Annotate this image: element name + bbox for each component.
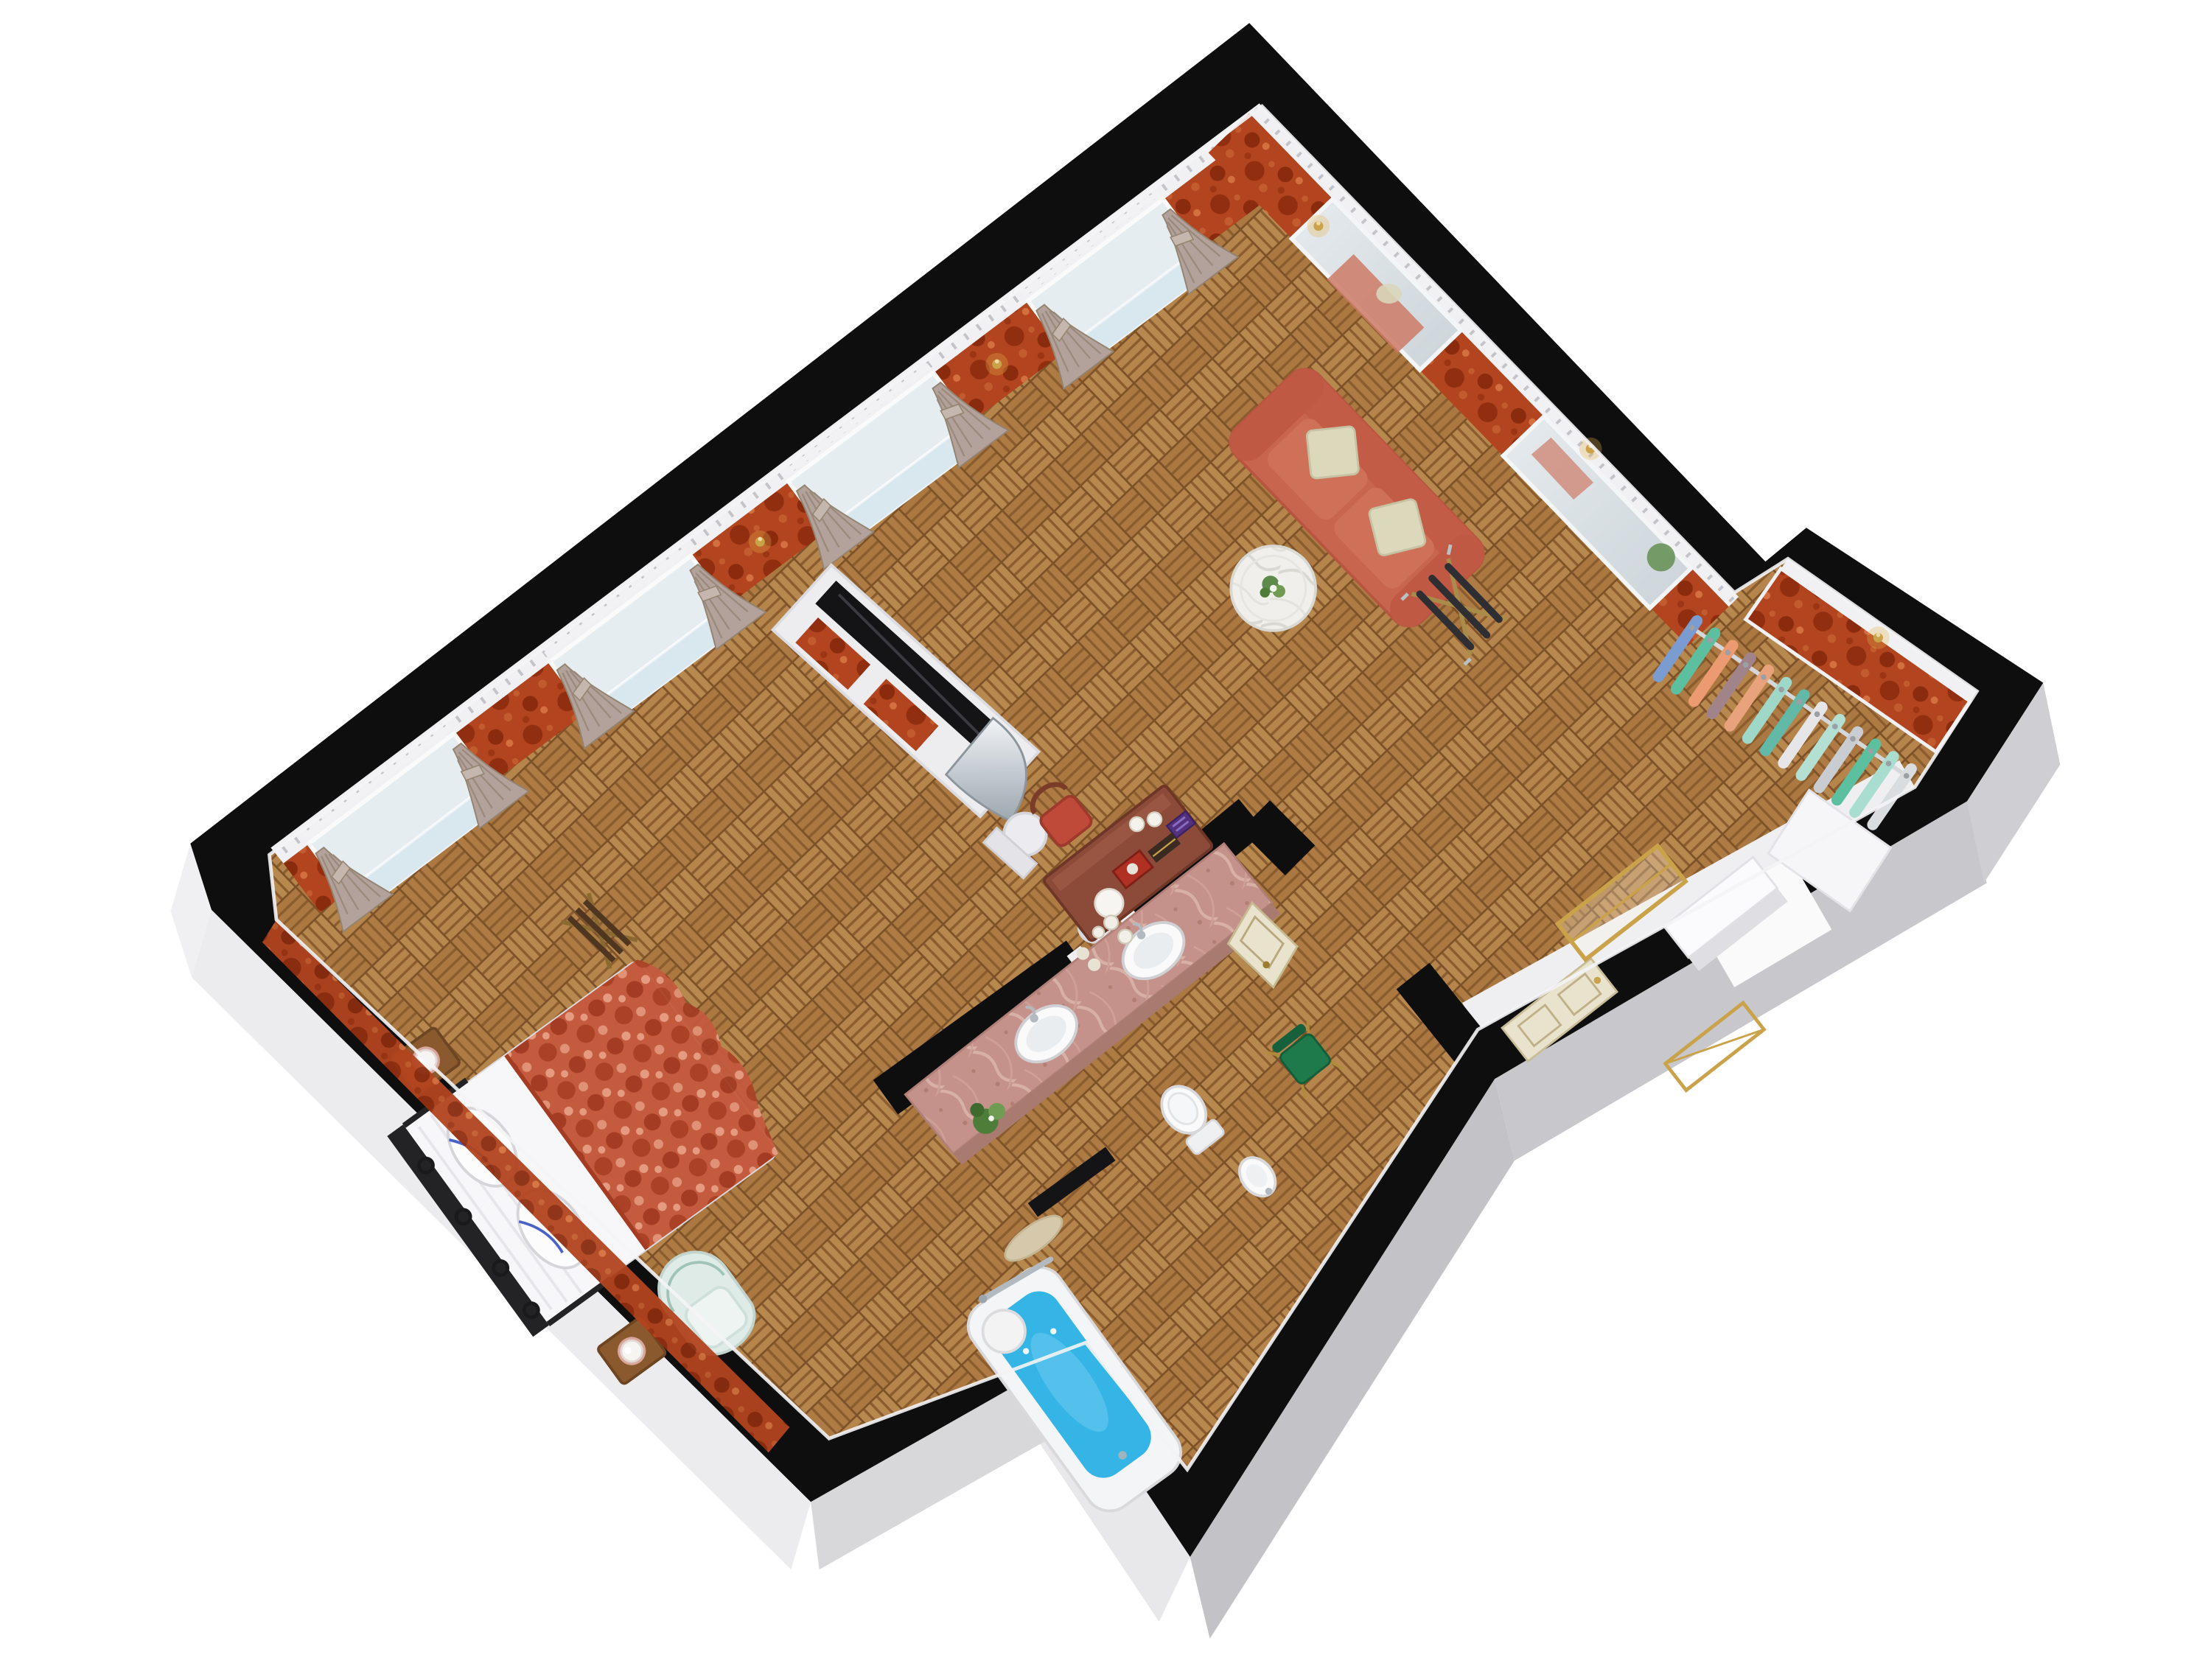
hanging-garment (1712, 658, 1750, 714)
frieze-molding (276, 112, 1265, 856)
purple-box (1167, 811, 1195, 839)
faucet (1136, 929, 1148, 941)
hall-door (1502, 959, 1617, 1061)
floor-parquet (269, 106, 1977, 1469)
bedroom-armchair (644, 1238, 766, 1368)
hanger-hook (1725, 650, 1731, 656)
bath-nw-wall-a (1128, 816, 1252, 917)
armchair-cushion (682, 1283, 751, 1351)
toilet-bowl (1153, 1077, 1215, 1141)
nightstand-right (597, 1317, 667, 1385)
bed-base (403, 959, 778, 1323)
floor (269, 106, 1977, 1469)
closet-wallpaper (1746, 569, 1970, 752)
chair-gold-legs (1268, 1021, 1344, 1099)
bed-sheet-fold (403, 1055, 646, 1323)
bathroom-door (1228, 903, 1297, 987)
door-panel (1241, 917, 1283, 967)
page-background (0, 1, 2211, 1680)
wallpaper-band (284, 119, 1309, 912)
gold-frame (1666, 1003, 1764, 1091)
bidet-faucet (1264, 1186, 1274, 1196)
column-top (995, 805, 1055, 864)
sofa-pillow (1307, 426, 1359, 478)
sink-left (1106, 903, 1195, 990)
toilet (1153, 1077, 1226, 1156)
vanity-counter-edge (953, 903, 1280, 1165)
curtain-drape (537, 648, 634, 748)
flower-vase (1260, 575, 1285, 598)
bath-nw-wall-b (886, 958, 1079, 1097)
wallpaper-band (1209, 113, 1729, 646)
hanger-hook (1868, 749, 1873, 755)
tub-side-stool (983, 1310, 1025, 1352)
shower-bar-post (979, 1295, 987, 1303)
green-chair (1266, 1019, 1344, 1099)
valance-rod (545, 549, 686, 654)
valet-rack (561, 893, 637, 968)
cornice-band (270, 103, 1271, 863)
curtain-drape (777, 469, 874, 570)
chrome-sail (943, 718, 1054, 827)
valance-rod (304, 727, 450, 836)
window-1 (1024, 192, 1215, 370)
hanging-garment (1837, 744, 1876, 800)
living-room (1025, 361, 1517, 942)
closet-wall (1746, 559, 1977, 752)
iron-headboard (387, 1124, 549, 1337)
closet-rail (1692, 628, 1907, 776)
partition-wallpaper-inset (864, 679, 939, 751)
bath-ne-wall-b (1413, 976, 1492, 1075)
door-panel (1559, 974, 1601, 1015)
toilet-tank (1185, 1119, 1226, 1155)
door-jamb (1067, 946, 1091, 970)
hanging-garment (1677, 633, 1715, 689)
bidet (1232, 1151, 1283, 1204)
door-side-face (1688, 888, 1788, 970)
sofa-back (1279, 361, 1491, 579)
counter-plant (970, 1103, 1005, 1134)
radiator-cover (825, 422, 985, 550)
gold-sconce-icon (1867, 626, 1890, 649)
wall-slab (190, 23, 2043, 1557)
tub-jet (1021, 1347, 1030, 1356)
pillow-reflection (1376, 284, 1401, 304)
curtain-drape (668, 549, 766, 649)
bathtub (958, 1257, 1191, 1521)
column (1079, 911, 1110, 942)
sofa-arm-left (1222, 361, 1330, 468)
toiletries (1077, 915, 1133, 971)
sofa-pillow (1368, 498, 1426, 556)
tv-partition (761, 565, 1093, 878)
mirror-panel-2 (1503, 416, 1691, 608)
window-2 (784, 365, 986, 550)
hanger-hook (1886, 760, 1892, 766)
writing-desk (1043, 785, 1214, 942)
hanger-hook (1707, 637, 1713, 643)
plant-reflection (1647, 543, 1675, 571)
sofa-reflection-2 (1531, 438, 1593, 500)
gold-console (1558, 846, 1686, 959)
sofa-seat-left (1262, 414, 1372, 524)
table-lamp-shade (617, 1337, 646, 1366)
inner-edge-highlight (269, 106, 1977, 1469)
sconce-layer (749, 214, 1890, 648)
partition-wallpaper-inset (795, 617, 870, 690)
pillow-piping (449, 1124, 562, 1267)
white-panel (1768, 790, 1890, 911)
ornate-red-box (1113, 850, 1153, 888)
hall-outer-face (1495, 801, 1987, 1161)
notch-outer-face (811, 1361, 1067, 1569)
chair-back (1271, 1022, 1307, 1054)
radiator-cover (587, 605, 743, 730)
faucet-spout (1133, 921, 1145, 935)
hanger-hook (1904, 773, 1910, 779)
bedroom-wallpaper-strip (262, 920, 790, 1452)
coverlet-fold (506, 1055, 647, 1249)
chair-backrest (1026, 777, 1066, 813)
tub-jet (1049, 1327, 1058, 1336)
wall-outer-faces (171, 683, 2061, 1639)
curtains (296, 194, 1238, 931)
partition-body (773, 565, 1039, 817)
hanger-hook (1850, 736, 1856, 742)
walk-in-closet (1658, 621, 1911, 825)
tub-water (982, 1282, 1160, 1486)
hanger-hook (1743, 662, 1749, 668)
sofa (1222, 361, 1491, 634)
cabinet-tv-slab (815, 581, 1017, 767)
door-knob (1262, 962, 1270, 969)
bath-ne-wall-a (1255, 816, 1300, 861)
window-wall (270, 103, 1308, 931)
desk-lamp (1089, 883, 1129, 923)
faucet-spout (1025, 1004, 1037, 1018)
desk-top (1043, 785, 1214, 942)
mirror-wall (1209, 103, 1739, 646)
curtain-drape (1141, 194, 1238, 294)
armchair-back (644, 1238, 766, 1368)
window-4-bedroom (304, 727, 506, 913)
hanging-garment (1784, 707, 1822, 763)
bathroom-se-outer-face (1190, 1079, 1515, 1639)
hanging-garment (1819, 732, 1857, 788)
bathroom (905, 844, 1344, 1521)
iron-siderail (404, 1080, 611, 1324)
radiator-cover (1065, 248, 1216, 370)
floorplan-svg (0, 0, 2211, 1680)
table-lamp-shade (411, 1046, 441, 1075)
tub-drain (1117, 1449, 1128, 1461)
bedroom (262, 920, 1116, 1452)
valance-rod (784, 365, 929, 474)
hanger-hook (1814, 711, 1820, 717)
coffee-cup (1145, 809, 1164, 829)
fabric-drape (999, 1208, 1069, 1269)
table-lamp-base (612, 1331, 651, 1371)
gold-sconce-icon (749, 531, 772, 553)
gold-sconce-icon (1579, 438, 1602, 461)
sofa-seat-right (1330, 483, 1439, 593)
bed-pillow (503, 1177, 601, 1281)
entry-hall (1502, 790, 1891, 1091)
frieze-molding (1255, 109, 1735, 603)
lamp-highlight (417, 1055, 427, 1065)
window-glass (789, 373, 971, 531)
window-glass (309, 734, 491, 893)
bed-pillow (434, 1095, 531, 1199)
curtain-drape (296, 831, 393, 931)
headboard-scrolls (416, 1155, 542, 1320)
curtain-drape (432, 728, 529, 828)
sheet-texture (416, 1104, 581, 1313)
coffee-table (1231, 546, 1316, 631)
hanger-hook (1832, 724, 1838, 729)
bathroom-walls (886, 816, 1492, 1098)
cornice-band (1249, 103, 1739, 606)
floor-base (269, 106, 1977, 1469)
coffee-cup (1127, 814, 1147, 834)
desk-chair (1025, 777, 1094, 848)
hanging-garment (1730, 671, 1768, 727)
valance-rod (1024, 192, 1159, 294)
book-stack (1148, 833, 1181, 863)
bed-coverlet (506, 959, 778, 1248)
hanging-garment (1801, 720, 1840, 776)
sofa-reflection (1327, 254, 1424, 353)
gold-sconce-icon (985, 353, 1008, 376)
curtain-drape (1016, 289, 1114, 389)
luggage-rack (1398, 545, 1517, 665)
nightstand-left (391, 1026, 461, 1094)
closet-cornice (1781, 559, 1977, 701)
door-jamb (1117, 905, 1140, 928)
garment-layer (1658, 621, 1911, 825)
hanging-garment (1873, 769, 1911, 825)
book-gilt (1153, 839, 1175, 857)
west-step-outer-face (171, 844, 212, 978)
window-glass (1028, 199, 1200, 350)
vanity-counter (905, 844, 1271, 1154)
entry-doorway (1692, 856, 1831, 987)
radiator-cover (346, 783, 506, 913)
toilet-seat (1162, 1088, 1203, 1130)
tv-sheen (831, 595, 1005, 752)
hanger-hook (1797, 699, 1803, 705)
sofa-arm-right (1383, 528, 1491, 634)
hanging-garment (1766, 695, 1804, 751)
hanging-garment (1694, 645, 1733, 701)
sink-right (999, 987, 1088, 1074)
gold-sconce-icon (1307, 214, 1330, 237)
window-3 (545, 549, 743, 731)
hanging-garment (1855, 757, 1893, 813)
hanging-garment (1747, 682, 1786, 738)
desk-top-sheen (1052, 793, 1172, 891)
faucet (1028, 1012, 1040, 1024)
door-panel (1518, 1005, 1560, 1046)
entry-door (1664, 857, 1788, 971)
hanging-garment (1658, 621, 1697, 677)
window-glass (550, 556, 727, 710)
double-bed (387, 942, 799, 1337)
closet-side-outer-face (1967, 683, 2060, 883)
column-base (984, 827, 1037, 878)
hanger-hook (1778, 687, 1784, 693)
purple-box-dots (1173, 817, 1188, 831)
mirror-panel-1 (1292, 199, 1461, 370)
curtain-drape (911, 367, 1008, 467)
hanger-hook (1761, 674, 1767, 680)
closet-panel-frame (1746, 569, 1970, 752)
shower-bar (983, 1259, 1051, 1299)
ornate-box-motif (1125, 861, 1140, 876)
table-lamp-base (406, 1041, 445, 1080)
bedroom-outer-face (192, 910, 811, 1569)
lamp-highlight (623, 1345, 632, 1355)
floorplan-stage (0, 0, 2211, 1680)
door-knob (1593, 976, 1602, 985)
bathroom-sw-outer-face (1028, 1361, 1190, 1622)
water-highlight (1018, 1322, 1122, 1443)
hall-wainscot (1462, 760, 1915, 1029)
hanger-hook (1689, 625, 1695, 631)
coverlet-drape (529, 946, 797, 1233)
wall-tv (1028, 1147, 1116, 1217)
armchair-piping (655, 1250, 724, 1312)
sofa-body (1222, 361, 1491, 634)
